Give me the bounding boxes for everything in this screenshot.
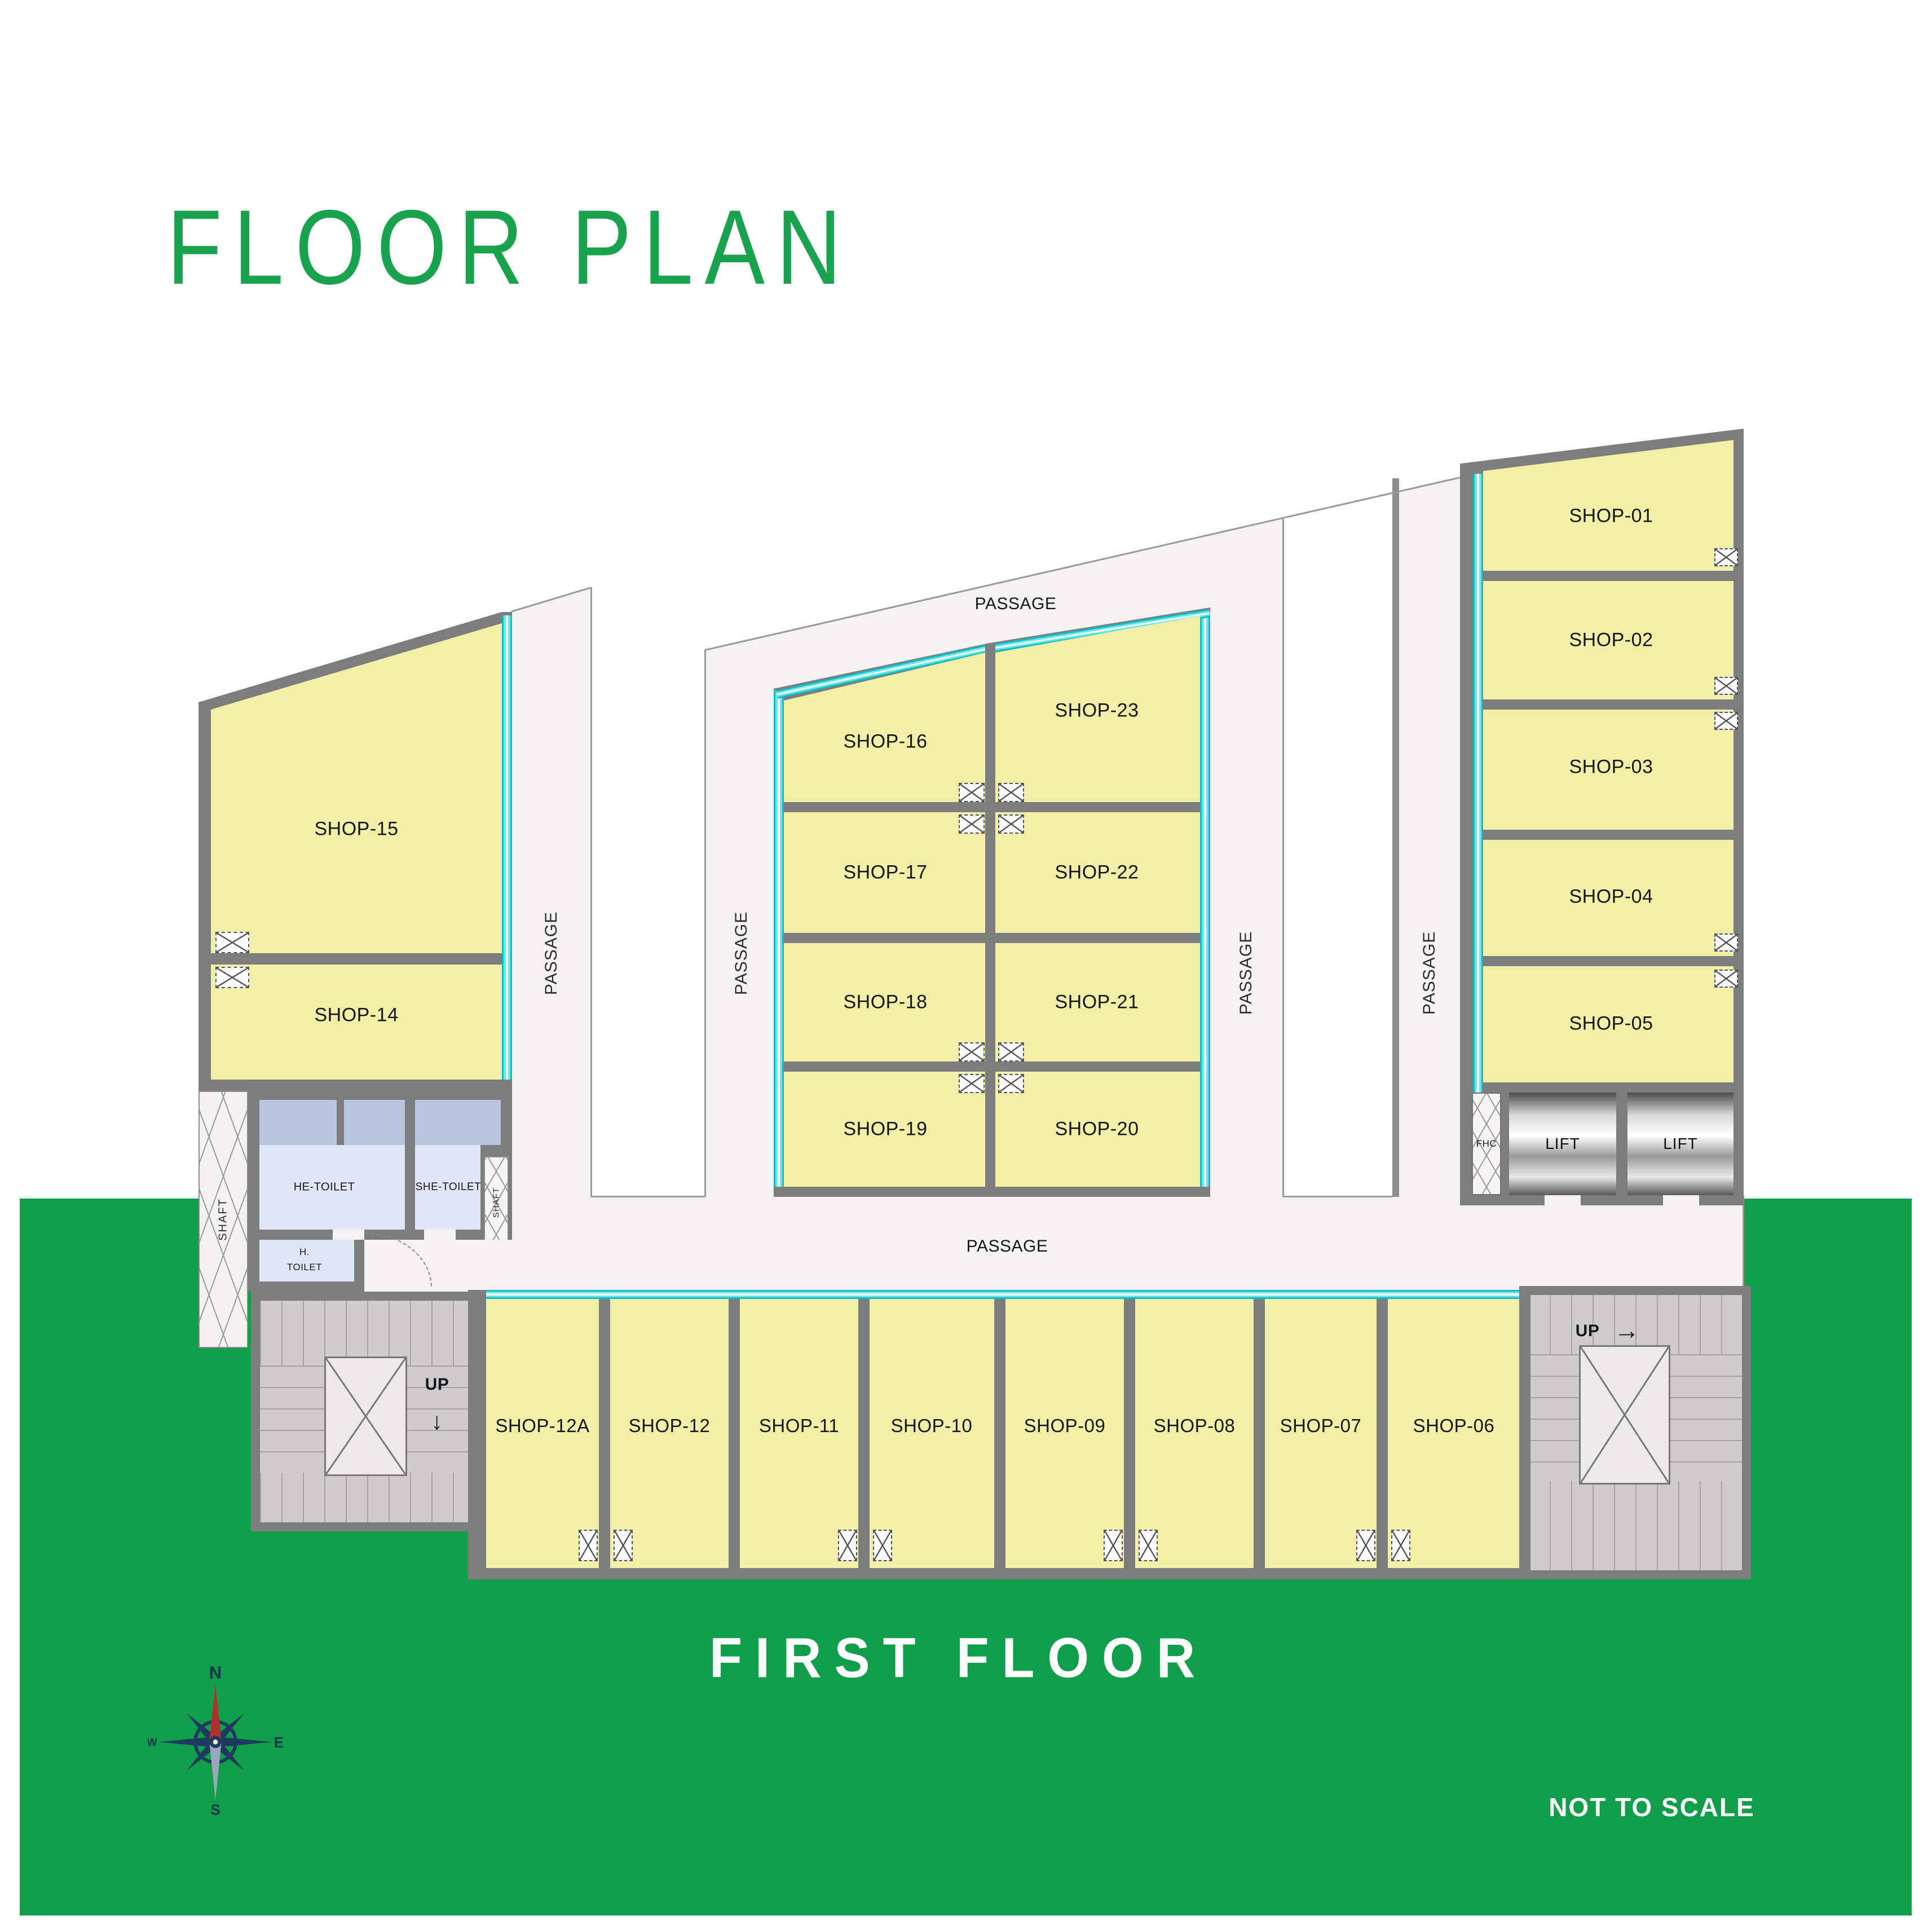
middle-block bbox=[774, 607, 1210, 1197]
door-symbol bbox=[579, 1530, 598, 1561]
row-wall bbox=[599, 1299, 610, 1568]
shaft-label: SHAFT bbox=[492, 1187, 501, 1218]
shop-label: SHOP-22 bbox=[1055, 862, 1139, 884]
door-symbol bbox=[215, 967, 249, 988]
toilet-cubicle bbox=[344, 1100, 405, 1145]
shop-label: SHOP-06 bbox=[1413, 1415, 1495, 1437]
compass-n-label: N bbox=[209, 1665, 222, 1683]
shop-label: SHOP-12 bbox=[629, 1415, 711, 1437]
right-wing-block: LIFT LIFT bbox=[1460, 429, 1744, 1205]
passage-label-vertical: PASSAGE bbox=[1237, 931, 1256, 1015]
outline-line bbox=[1282, 518, 1284, 1197]
passage-label: PASSAGE bbox=[975, 594, 1057, 614]
down-arrow-icon: ↓ bbox=[431, 1408, 443, 1435]
door-symbol bbox=[998, 783, 1024, 802]
door-symbol bbox=[1714, 970, 1738, 988]
floor-title: FIRST FLOOR bbox=[709, 1626, 1208, 1691]
door-symbol bbox=[1714, 548, 1738, 566]
door-symbol bbox=[998, 1042, 1024, 1062]
row-wall bbox=[1377, 1299, 1388, 1568]
door-symbol bbox=[1391, 1530, 1410, 1561]
outline-line bbox=[590, 587, 592, 1197]
shop-room bbox=[211, 612, 502, 953]
shopfront-glazing bbox=[1473, 474, 1483, 1093]
stair-void bbox=[1579, 1345, 1670, 1485]
door-symbol bbox=[614, 1530, 633, 1561]
stair-treads bbox=[260, 1301, 468, 1366]
door-symbol bbox=[1356, 1530, 1375, 1561]
shop-label: SHOP-05 bbox=[1569, 1013, 1653, 1035]
row-wall bbox=[729, 1299, 740, 1568]
shopfront-glazing bbox=[1200, 617, 1210, 1187]
toilet-door-gap bbox=[333, 1230, 364, 1240]
shop-label: SHOP-19 bbox=[844, 1118, 928, 1140]
lift-cab: LIFT bbox=[1627, 1093, 1733, 1195]
shop-label: SHOP-18 bbox=[844, 992, 928, 1014]
shopfront-glazing bbox=[502, 615, 512, 1080]
outline-line bbox=[591, 1196, 705, 1197]
row-wall bbox=[1254, 1299, 1265, 1568]
stair-treads bbox=[260, 1473, 468, 1522]
door-symbol bbox=[959, 814, 985, 834]
passage-label-vertical: PASSAGE bbox=[542, 911, 561, 995]
door-symbol bbox=[959, 1042, 985, 1062]
lift-door-gap bbox=[1545, 1195, 1581, 1205]
up-label: UP bbox=[1576, 1322, 1600, 1341]
compass-e-label: E bbox=[274, 1734, 283, 1751]
room-label: SHE-TOILET bbox=[416, 1181, 482, 1193]
toilet-cubicle bbox=[415, 1100, 501, 1145]
shop-label: SHOP-08 bbox=[1154, 1415, 1236, 1437]
door-symbol bbox=[959, 1074, 985, 1093]
shop-label: SHOP-16 bbox=[844, 731, 928, 753]
central-wall bbox=[985, 643, 995, 1197]
shop-label: SHOP-21 bbox=[1055, 992, 1139, 1014]
shop-label: SHOP-10 bbox=[891, 1415, 973, 1437]
row-wall bbox=[1124, 1299, 1135, 1568]
stair-treads bbox=[1528, 1354, 1579, 1481]
toilet-door-gap bbox=[424, 1230, 456, 1240]
shop-label: SHOP-03 bbox=[1569, 756, 1653, 778]
toilet-cubicle bbox=[259, 1100, 337, 1145]
up-label: UP bbox=[425, 1375, 449, 1394]
stair-treads bbox=[1667, 1354, 1742, 1481]
compass-s-label: S bbox=[210, 1802, 220, 1816]
shop-label: SHOP-11 bbox=[759, 1415, 839, 1437]
outline-line bbox=[1283, 1196, 1392, 1197]
door-symbol bbox=[998, 814, 1024, 834]
outline-wall bbox=[1392, 478, 1399, 1197]
row-wall bbox=[994, 1299, 1005, 1568]
shop-label: SHOP-14 bbox=[315, 1005, 399, 1027]
shop-label: SHOP-20 bbox=[1055, 1118, 1139, 1140]
door-symbol bbox=[959, 783, 985, 802]
room-label: H. bbox=[299, 1247, 310, 1258]
row-wall bbox=[858, 1299, 870, 1568]
compass-w-label: W bbox=[148, 1737, 158, 1749]
passage-label: PASSAGE bbox=[967, 1237, 1048, 1256]
outside-notch bbox=[1283, 496, 1392, 1197]
door-symbol bbox=[1104, 1530, 1123, 1561]
page-title: FLOOR PLAN bbox=[167, 186, 853, 308]
lift-door-gap bbox=[1663, 1195, 1699, 1205]
stair-left bbox=[251, 1292, 486, 1531]
stair-treads bbox=[260, 1366, 324, 1473]
door-symbol bbox=[1714, 933, 1738, 952]
lift-cab: LIFT bbox=[1509, 1093, 1616, 1195]
door-symbol bbox=[1714, 712, 1738, 730]
shop-label: SHOP-23 bbox=[1055, 700, 1139, 722]
stair-treads bbox=[1528, 1481, 1742, 1570]
row-wall bbox=[468, 1568, 1530, 1579]
right-arrow-icon: → bbox=[1614, 1315, 1640, 1345]
passage-label-vertical: PASSAGE bbox=[1420, 931, 1439, 1015]
row-wall bbox=[468, 1290, 486, 1579]
stair-void bbox=[324, 1357, 407, 1476]
outline-line bbox=[1743, 1195, 1744, 1290]
door-symbol bbox=[998, 1074, 1024, 1093]
shopfront-glazing bbox=[477, 1290, 1521, 1299]
shop-label: SHOP-15 bbox=[315, 818, 399, 840]
door-symbol bbox=[838, 1530, 857, 1561]
door-symbol bbox=[873, 1530, 892, 1561]
shopfront-glazing bbox=[774, 690, 784, 1187]
compass-rose-icon: N E S W bbox=[148, 1665, 283, 1816]
passage-label-vertical: PASSAGE bbox=[732, 911, 751, 995]
room-label: TOILET bbox=[287, 1262, 322, 1273]
shop-label: SHOP-04 bbox=[1569, 886, 1653, 908]
row-wall bbox=[1519, 1290, 1530, 1579]
shop-label: SHOP-02 bbox=[1569, 629, 1653, 651]
door-symbol bbox=[215, 932, 249, 953]
lift-label: LIFT bbox=[1545, 1135, 1580, 1153]
scale-note: NOT TO SCALE bbox=[1549, 1792, 1755, 1822]
fhc-label: FHC bbox=[1476, 1138, 1497, 1150]
shop-label: SHOP-01 bbox=[1569, 505, 1653, 527]
shaft-label: SHAFT bbox=[217, 1198, 230, 1241]
passage-area-left bbox=[512, 581, 591, 1197]
lift-label: LIFT bbox=[1663, 1135, 1698, 1153]
shop-label: SHOP-17 bbox=[844, 862, 928, 884]
room-label: HE-TOILET bbox=[294, 1181, 355, 1194]
outline-line bbox=[704, 650, 706, 1197]
shop-label: SHOP-12A bbox=[495, 1415, 589, 1437]
shop-label: SHOP-09 bbox=[1024, 1415, 1106, 1437]
door-symbol bbox=[1139, 1530, 1158, 1561]
shop-label: SHOP-07 bbox=[1280, 1415, 1362, 1437]
door-symbol bbox=[1714, 677, 1738, 695]
floor-plan-canvas: FLOOR PLAN LIFT LIFT FHC bbox=[0, 0, 1932, 1929]
